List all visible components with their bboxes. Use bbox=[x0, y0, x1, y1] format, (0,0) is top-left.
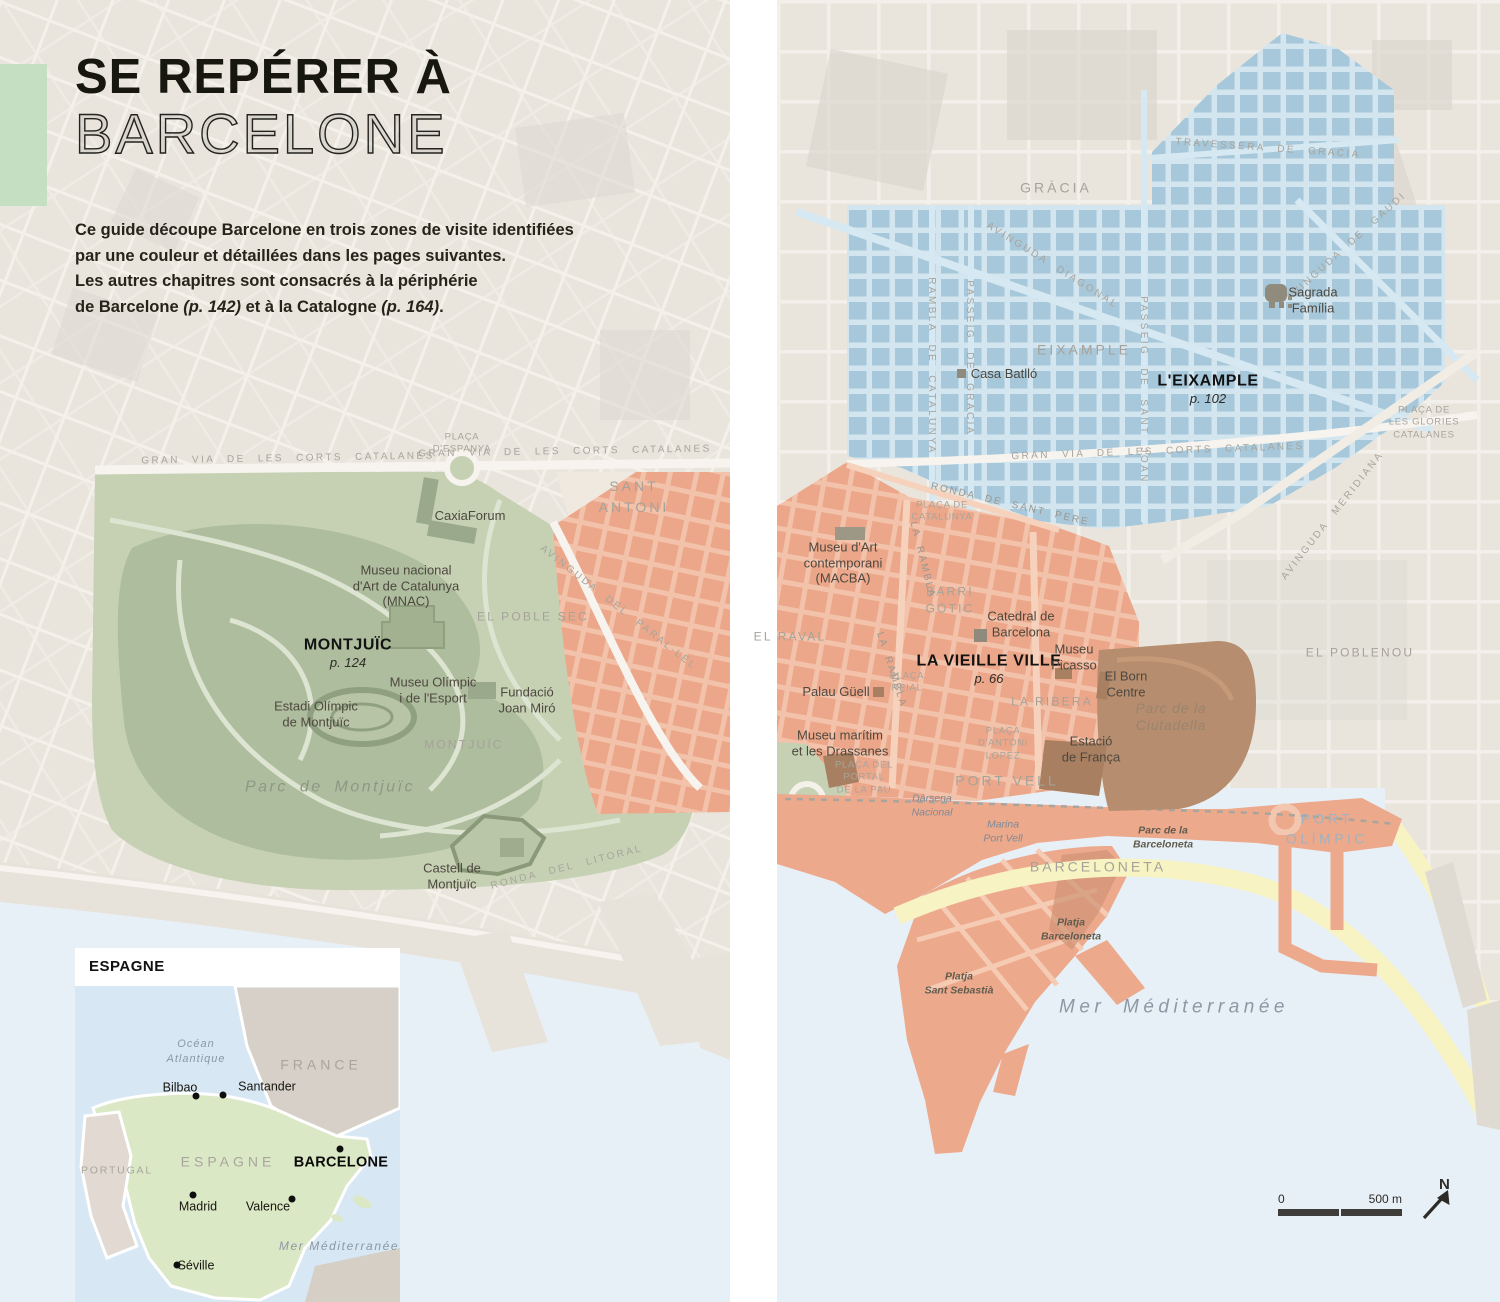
madrid-label: Madrid bbox=[179, 1200, 217, 1215]
mer-mediterranee-inset-label: Mer Méditerranée bbox=[279, 1239, 399, 1253]
intro-paragraph: Ce guide découpe Barcelone en trois zone… bbox=[75, 218, 615, 320]
santander-dot bbox=[220, 1092, 227, 1099]
france-label: FRANCE bbox=[280, 1057, 362, 1074]
seville-label: Séville bbox=[178, 1259, 215, 1274]
scale-bar: 0 500 m bbox=[1278, 1190, 1402, 1216]
scale-zero: 0 bbox=[1278, 1192, 1285, 1206]
ocean-atlantique-label: Océan Atlantique bbox=[167, 1037, 226, 1067]
scale-bar-line bbox=[1278, 1209, 1402, 1216]
intro-line: de Barcelone (p. 142) et à la Catalogne … bbox=[75, 295, 615, 321]
left-page: SE REPÉRER À BARCELONE Ce guide découpe … bbox=[0, 0, 730, 1302]
seville-dot bbox=[174, 1262, 181, 1269]
title-line-1: SE REPÉRER À bbox=[75, 52, 452, 103]
bilbao-dot bbox=[193, 1093, 200, 1100]
portugal-label: PORTUGAL bbox=[81, 1165, 153, 1178]
spain-inset-map: ESPAGNE Océan AtlantiqueFRANCEPORTUGALES… bbox=[75, 948, 400, 1302]
page-gutter bbox=[730, 0, 777, 1302]
scale-distance: 500 m bbox=[1369, 1192, 1402, 1206]
santander-label: Santander bbox=[238, 1080, 296, 1095]
right-map-canvas bbox=[777, 0, 1500, 1302]
intro-line: Ce guide découpe Barcelone en trois zone… bbox=[75, 218, 615, 244]
barcelone-label: BARCELONE bbox=[294, 1154, 389, 1171]
intro-line: par une couleur et détaillées dans les p… bbox=[75, 244, 615, 270]
inset-title: ESPAGNE bbox=[89, 958, 165, 975]
intro-line: Les autres chapitres sont consacrés à la… bbox=[75, 269, 615, 295]
placa-espanya-roundabout bbox=[447, 453, 477, 483]
valence-dot bbox=[289, 1196, 296, 1203]
right-page bbox=[777, 0, 1500, 1302]
madrid-dot bbox=[190, 1192, 197, 1199]
page-title: SE REPÉRER À BARCELONE bbox=[75, 52, 452, 165]
north-arrow: N bbox=[1418, 1178, 1458, 1224]
north-letter: N bbox=[1439, 1176, 1450, 1193]
espagne-label: ESPAGNE bbox=[181, 1154, 276, 1171]
barcelone-dot bbox=[337, 1146, 344, 1153]
title-line-2: BARCELONE bbox=[75, 103, 452, 165]
inset-map-canvas: Océan AtlantiqueFRANCEPORTUGALESPAGNEMer… bbox=[75, 986, 400, 1302]
valence-label: Valence bbox=[246, 1200, 290, 1215]
chapter-color-swatch bbox=[0, 64, 47, 206]
